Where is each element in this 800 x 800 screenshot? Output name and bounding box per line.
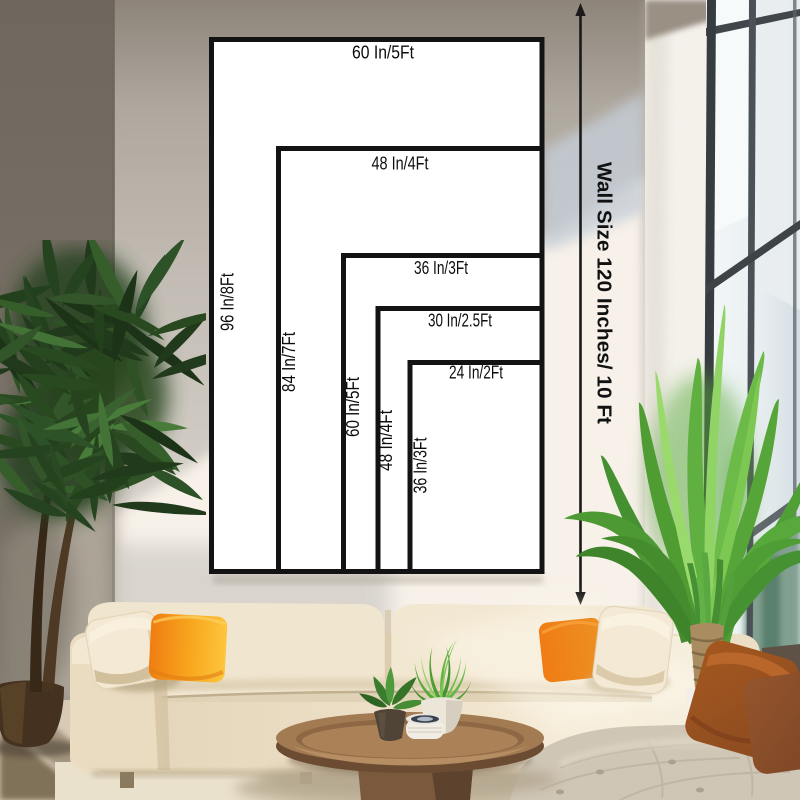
- svg-text:Wall Size 120 Inches/ 10 Ft: Wall Size 120 Inches/ 10 Ft: [593, 162, 615, 424]
- svg-text:30 In/2.5Ft: 30 In/2.5Ft: [428, 311, 492, 331]
- svg-text:24 In/2Ft: 24 In/2Ft: [449, 363, 503, 383]
- svg-text:84 In/7Ft: 84 In/7Ft: [279, 332, 299, 392]
- svg-text:60 In/5Ft: 60 In/5Ft: [352, 43, 414, 63]
- svg-text:96 In/8Ft: 96 In/8Ft: [218, 273, 238, 331]
- svg-text:60 In/5Ft: 60 In/5Ft: [343, 377, 363, 437]
- svg-text:48 In/4Ft: 48 In/4Ft: [372, 154, 429, 174]
- svg-text:36 In/3Ft: 36 In/3Ft: [414, 258, 468, 278]
- svg-text:36 In/3Ft: 36 In/3Ft: [411, 438, 431, 494]
- svg-text:48 In/4Ft: 48 In/4Ft: [376, 410, 396, 471]
